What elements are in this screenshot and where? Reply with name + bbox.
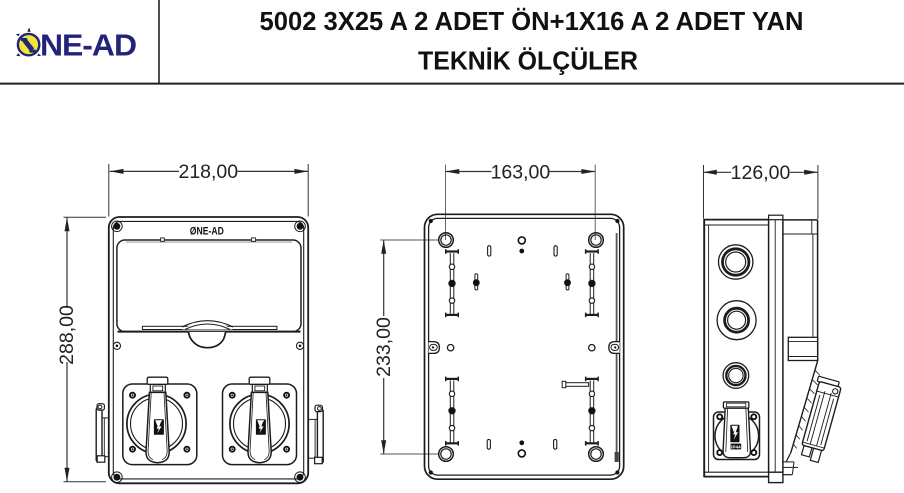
svg-text:NE-AD: NE-AD bbox=[40, 28, 137, 63]
svg-text:233,00: 233,00 bbox=[373, 317, 395, 377]
svg-text:5002 3X25 A 2 ADET ÖN+1X16 A 2: 5002 3X25 A 2 ADET ÖN+1X16 A 2 ADET YAN bbox=[260, 7, 804, 36]
svg-text:288,00: 288,00 bbox=[56, 305, 78, 365]
svg-text:163,00: 163,00 bbox=[491, 161, 551, 183]
svg-text:126,00: 126,00 bbox=[731, 162, 791, 184]
svg-text:TEKNİK ÖLÇÜLER: TEKNİK ÖLÇÜLER bbox=[418, 47, 638, 76]
svg-text:218,00: 218,00 bbox=[178, 161, 238, 183]
svg-text:ØNE-AD: ØNE-AD bbox=[190, 226, 224, 238]
svg-text:IP44: IP44 bbox=[731, 444, 741, 449]
